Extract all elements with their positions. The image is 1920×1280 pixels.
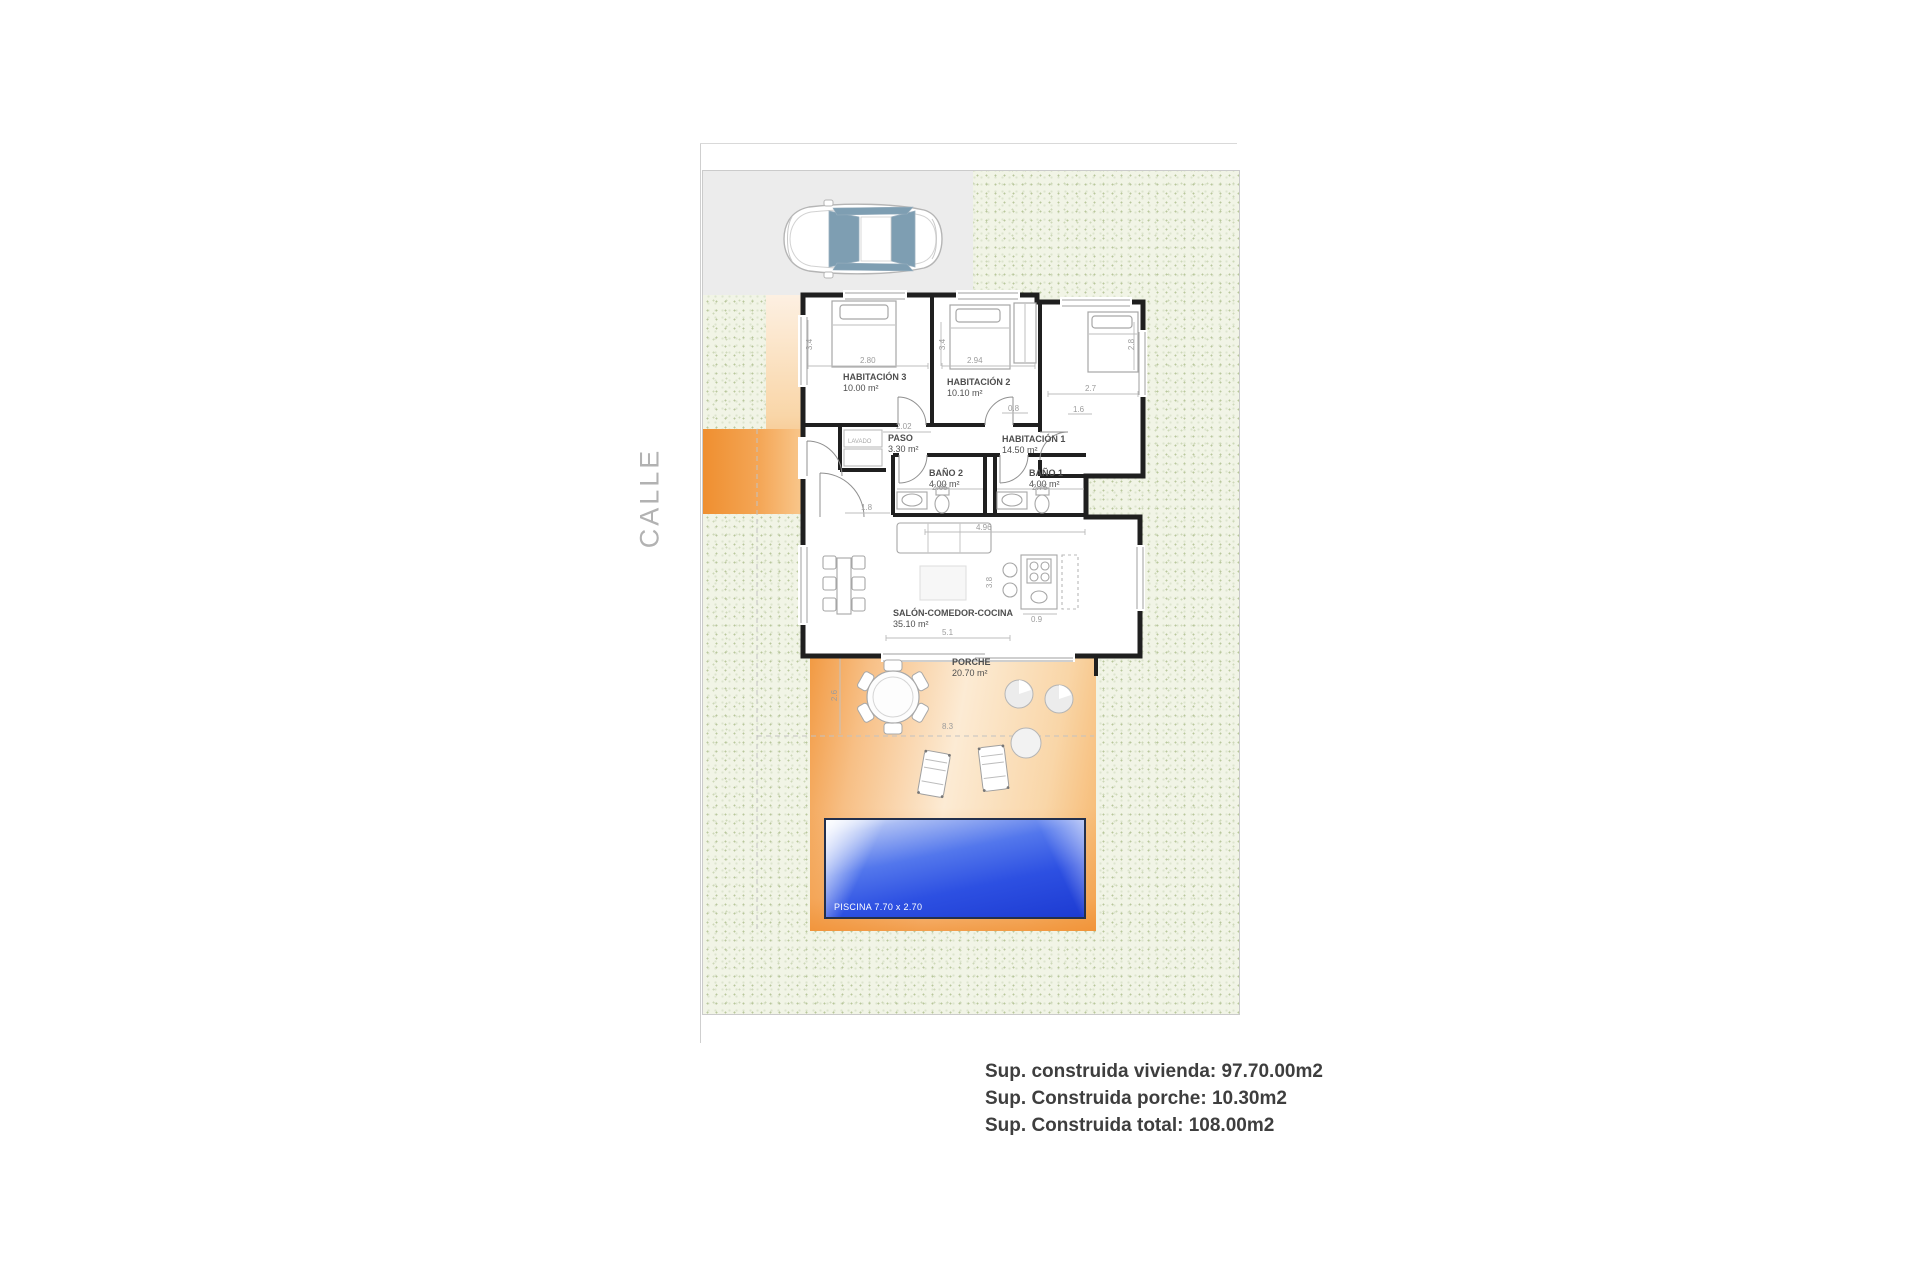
dim-label: 2.02 xyxy=(896,422,912,431)
dim-label: 0.8 xyxy=(1008,404,1019,413)
room-area: 3.30 m² xyxy=(888,444,919,455)
room-area: 14.50 m² xyxy=(1002,445,1065,456)
room-area: 10.10 m² xyxy=(947,388,1010,399)
dim-label: 2.8 xyxy=(1127,339,1136,350)
dim-label: 8.3 xyxy=(942,722,953,731)
bedroom-furniture xyxy=(832,301,1138,372)
room-area: 10.00 m² xyxy=(843,383,906,394)
room-name: PASO xyxy=(888,433,919,444)
room-name: HABITACIÓN 2 xyxy=(947,377,1010,388)
room-label-habitacion-3: HABITACIÓN 3 10.00 m² xyxy=(843,372,906,394)
floor-plan-linework xyxy=(0,0,1920,1280)
summary-line-vivienda: Sup. construida vivienda: 97.70.00m2 xyxy=(985,1058,1323,1085)
summary-line-porche: Sup. Construida porche: 10.30m2 xyxy=(985,1085,1323,1112)
dim-label: 3.4 xyxy=(938,339,947,350)
summary-line-total: Sup. Construida total: 108.00m2 xyxy=(985,1112,1323,1139)
planter-icon xyxy=(1005,680,1073,758)
room-label-salon: SALÓN-COMEDOR-COCINA 35.10 m² xyxy=(893,608,1013,630)
room-label-paso: PASO 3.30 m² xyxy=(888,433,919,455)
dim-label: 3.8 xyxy=(985,577,994,588)
room-name: BAÑO 1 xyxy=(1029,468,1063,479)
dim-label: 2.6 xyxy=(830,690,839,701)
dim-label: 1.6 xyxy=(1073,405,1084,414)
dim-label: 2.94 xyxy=(967,356,983,365)
dim-label: 2.65 xyxy=(932,483,948,492)
room-label-habitacion-1: HABITACIÓN 1 14.50 m² xyxy=(1002,434,1065,456)
dim-label: 1.8 xyxy=(861,503,872,512)
sun-lounger-icon xyxy=(978,744,1010,792)
dim-label: 2.7 xyxy=(1085,384,1096,393)
room-name: HABITACIÓN 1 xyxy=(1002,434,1065,445)
room-label-habitacion-2: HABITACIÓN 2 10.10 m² xyxy=(947,377,1010,399)
room-area: 20.70 m² xyxy=(952,668,991,679)
dim-label: 5.1 xyxy=(942,628,953,637)
car-icon xyxy=(784,200,942,278)
room-name: PORCHE xyxy=(952,657,991,668)
dim-label: 4.96 xyxy=(976,523,992,532)
laundry-label: LAVADO xyxy=(848,439,871,445)
dim-label: 0.9 xyxy=(1031,615,1042,624)
sun-lounger-icon xyxy=(917,750,951,799)
dim-label: 2.75 xyxy=(1032,483,1048,492)
dim-label: 2.80 xyxy=(860,356,876,365)
room-name: SALÓN-COMEDOR-COCINA xyxy=(893,608,1013,619)
site-plan-page: CALLE PISCINA 7.70 x 2.70 xyxy=(0,0,1920,1280)
room-label-porche: PORCHE 20.70 m² xyxy=(952,657,991,679)
porch-furniture xyxy=(856,660,1073,798)
room-name: BAÑO 2 xyxy=(929,468,963,479)
dim-label: 3.4 xyxy=(805,339,814,350)
room-name: HABITACIÓN 3 xyxy=(843,372,906,383)
built-area-summary: Sup. construida vivienda: 97.70.00m2 Sup… xyxy=(985,1058,1323,1139)
